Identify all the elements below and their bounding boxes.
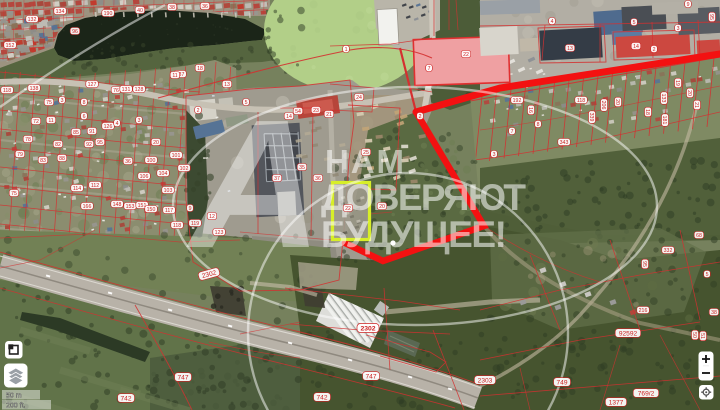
svg-text:133: 133 bbox=[660, 94, 666, 103]
svg-text:9: 9 bbox=[687, 2, 690, 8]
svg-text:100: 100 bbox=[147, 158, 156, 164]
svg-text:2302: 2302 bbox=[360, 325, 375, 332]
svg-text:11: 11 bbox=[172, 73, 177, 79]
svg-text:85: 85 bbox=[73, 130, 79, 136]
svg-text:138: 138 bbox=[30, 86, 39, 92]
svg-text:118: 118 bbox=[577, 98, 585, 104]
svg-text:25: 25 bbox=[363, 150, 369, 156]
svg-text:96: 96 bbox=[72, 29, 78, 35]
svg-text:2: 2 bbox=[419, 114, 422, 120]
svg-text:5: 5 bbox=[633, 20, 636, 26]
svg-text:742: 742 bbox=[316, 394, 327, 401]
svg-text:134: 134 bbox=[56, 9, 65, 15]
svg-text:24: 24 bbox=[356, 95, 362, 101]
svg-text:54: 54 bbox=[295, 109, 301, 115]
svg-text:101: 101 bbox=[172, 153, 181, 159]
svg-text:104: 104 bbox=[159, 171, 168, 177]
svg-text:21: 21 bbox=[693, 102, 699, 108]
svg-text:22: 22 bbox=[463, 52, 469, 58]
svg-text:123: 123 bbox=[215, 230, 224, 236]
svg-text:75: 75 bbox=[46, 100, 52, 106]
svg-text:18: 18 bbox=[644, 109, 650, 115]
svg-text:95: 95 bbox=[97, 140, 103, 146]
svg-text:37: 37 bbox=[274, 176, 280, 182]
svg-text:38: 38 bbox=[711, 310, 717, 316]
svg-text:5: 5 bbox=[245, 100, 248, 106]
svg-text:22: 22 bbox=[345, 206, 351, 212]
svg-text:3: 3 bbox=[493, 152, 496, 158]
svg-text:2: 2 bbox=[197, 108, 200, 114]
svg-text:102: 102 bbox=[180, 166, 189, 172]
svg-text:2: 2 bbox=[653, 47, 656, 53]
svg-text:4: 4 bbox=[551, 19, 554, 25]
svg-text:2303: 2303 bbox=[478, 377, 493, 384]
svg-text:192: 192 bbox=[513, 98, 522, 104]
svg-text:153: 153 bbox=[126, 204, 135, 210]
svg-text:68: 68 bbox=[696, 233, 702, 239]
svg-text:9: 9 bbox=[189, 206, 192, 212]
svg-text:7: 7 bbox=[511, 129, 514, 135]
svg-text:50 m: 50 m bbox=[6, 392, 22, 399]
svg-text:88: 88 bbox=[59, 156, 65, 162]
svg-text:18: 18 bbox=[197, 66, 203, 72]
svg-text:118: 118 bbox=[173, 223, 181, 229]
svg-text:20: 20 bbox=[153, 140, 159, 146]
svg-text:75: 75 bbox=[11, 191, 17, 197]
svg-text:12: 12 bbox=[209, 214, 215, 220]
svg-text:3: 3 bbox=[61, 98, 64, 104]
svg-text:152: 152 bbox=[6, 43, 15, 49]
svg-text:16: 16 bbox=[527, 107, 533, 113]
svg-text:6: 6 bbox=[83, 114, 86, 120]
svg-text:20: 20 bbox=[686, 90, 692, 96]
svg-text:23: 23 bbox=[313, 108, 319, 114]
svg-text:92: 92 bbox=[86, 142, 92, 148]
svg-text:749: 749 bbox=[556, 379, 567, 386]
svg-text:8: 8 bbox=[83, 100, 86, 106]
svg-text:1: 1 bbox=[345, 47, 348, 53]
svg-text:38: 38 bbox=[169, 5, 175, 11]
svg-text:150: 150 bbox=[147, 207, 156, 213]
svg-text:78: 78 bbox=[25, 137, 31, 143]
svg-text:206: 206 bbox=[600, 101, 606, 110]
svg-text:50: 50 bbox=[691, 332, 697, 338]
svg-text:95: 95 bbox=[708, 14, 714, 20]
svg-text:747: 747 bbox=[177, 374, 188, 381]
svg-text:1377: 1377 bbox=[609, 399, 624, 406]
svg-text:БУДУЩЕЕ!: БУДУЩЕЕ! bbox=[321, 214, 507, 255]
svg-text:4: 4 bbox=[116, 121, 119, 127]
svg-text:3: 3 bbox=[138, 118, 141, 124]
svg-text:11: 11 bbox=[48, 118, 53, 124]
svg-text:114: 114 bbox=[73, 186, 81, 192]
svg-text:5: 5 bbox=[706, 272, 709, 278]
svg-text:76: 76 bbox=[113, 88, 119, 94]
svg-text:95: 95 bbox=[641, 261, 647, 267]
svg-text:119: 119 bbox=[191, 221, 199, 227]
svg-text:ДОВЕРЯЮТ: ДОВЕРЯЮТ bbox=[321, 177, 526, 218]
svg-text:166: 166 bbox=[83, 204, 92, 210]
svg-text:3: 3 bbox=[677, 26, 680, 32]
svg-text:117: 117 bbox=[165, 208, 173, 214]
svg-text:112: 112 bbox=[91, 183, 99, 189]
svg-text:118: 118 bbox=[3, 88, 11, 94]
svg-text:83: 83 bbox=[40, 158, 46, 164]
svg-text:131: 131 bbox=[122, 87, 131, 93]
svg-text:148: 148 bbox=[113, 202, 122, 208]
svg-text:13: 13 bbox=[567, 46, 573, 52]
svg-text:92592: 92592 bbox=[619, 330, 638, 337]
svg-text:36: 36 bbox=[125, 159, 131, 165]
svg-text:127: 127 bbox=[88, 82, 97, 88]
svg-text:35: 35 bbox=[299, 165, 305, 171]
svg-text:19: 19 bbox=[674, 80, 680, 86]
svg-text:126: 126 bbox=[104, 124, 113, 130]
svg-text:72: 72 bbox=[33, 119, 39, 125]
svg-text:36: 36 bbox=[315, 176, 321, 182]
svg-text:82: 82 bbox=[55, 142, 61, 148]
svg-text:20: 20 bbox=[614, 99, 620, 105]
svg-text:190: 190 bbox=[104, 11, 113, 17]
svg-text:14: 14 bbox=[633, 44, 639, 50]
svg-text:79: 79 bbox=[17, 152, 23, 158]
svg-text:21: 21 bbox=[326, 112, 332, 118]
svg-text:20: 20 bbox=[379, 204, 385, 210]
svg-text:51: 51 bbox=[699, 333, 705, 339]
svg-text:769/2: 769/2 bbox=[638, 390, 655, 397]
svg-text:40: 40 bbox=[137, 8, 143, 14]
svg-text:332: 332 bbox=[664, 248, 673, 254]
svg-text:343: 343 bbox=[560, 140, 569, 146]
svg-text:8: 8 bbox=[537, 122, 540, 128]
svg-text:91: 91 bbox=[89, 129, 95, 135]
svg-text:181: 181 bbox=[661, 116, 667, 125]
svg-text:106: 106 bbox=[140, 174, 149, 180]
svg-text:128: 128 bbox=[135, 87, 144, 93]
svg-text:747: 747 bbox=[365, 373, 376, 380]
svg-text:216: 216 bbox=[639, 308, 648, 314]
svg-text:339: 339 bbox=[588, 113, 594, 122]
svg-text:7: 7 bbox=[428, 66, 431, 72]
svg-text:132: 132 bbox=[28, 17, 37, 23]
svg-text:36: 36 bbox=[202, 4, 208, 10]
svg-text:103: 103 bbox=[164, 188, 173, 194]
svg-text:13: 13 bbox=[224, 82, 230, 88]
svg-text:742: 742 bbox=[120, 395, 131, 402]
svg-text:14: 14 bbox=[286, 114, 292, 120]
svg-text:200 ft.: 200 ft. bbox=[6, 402, 26, 409]
